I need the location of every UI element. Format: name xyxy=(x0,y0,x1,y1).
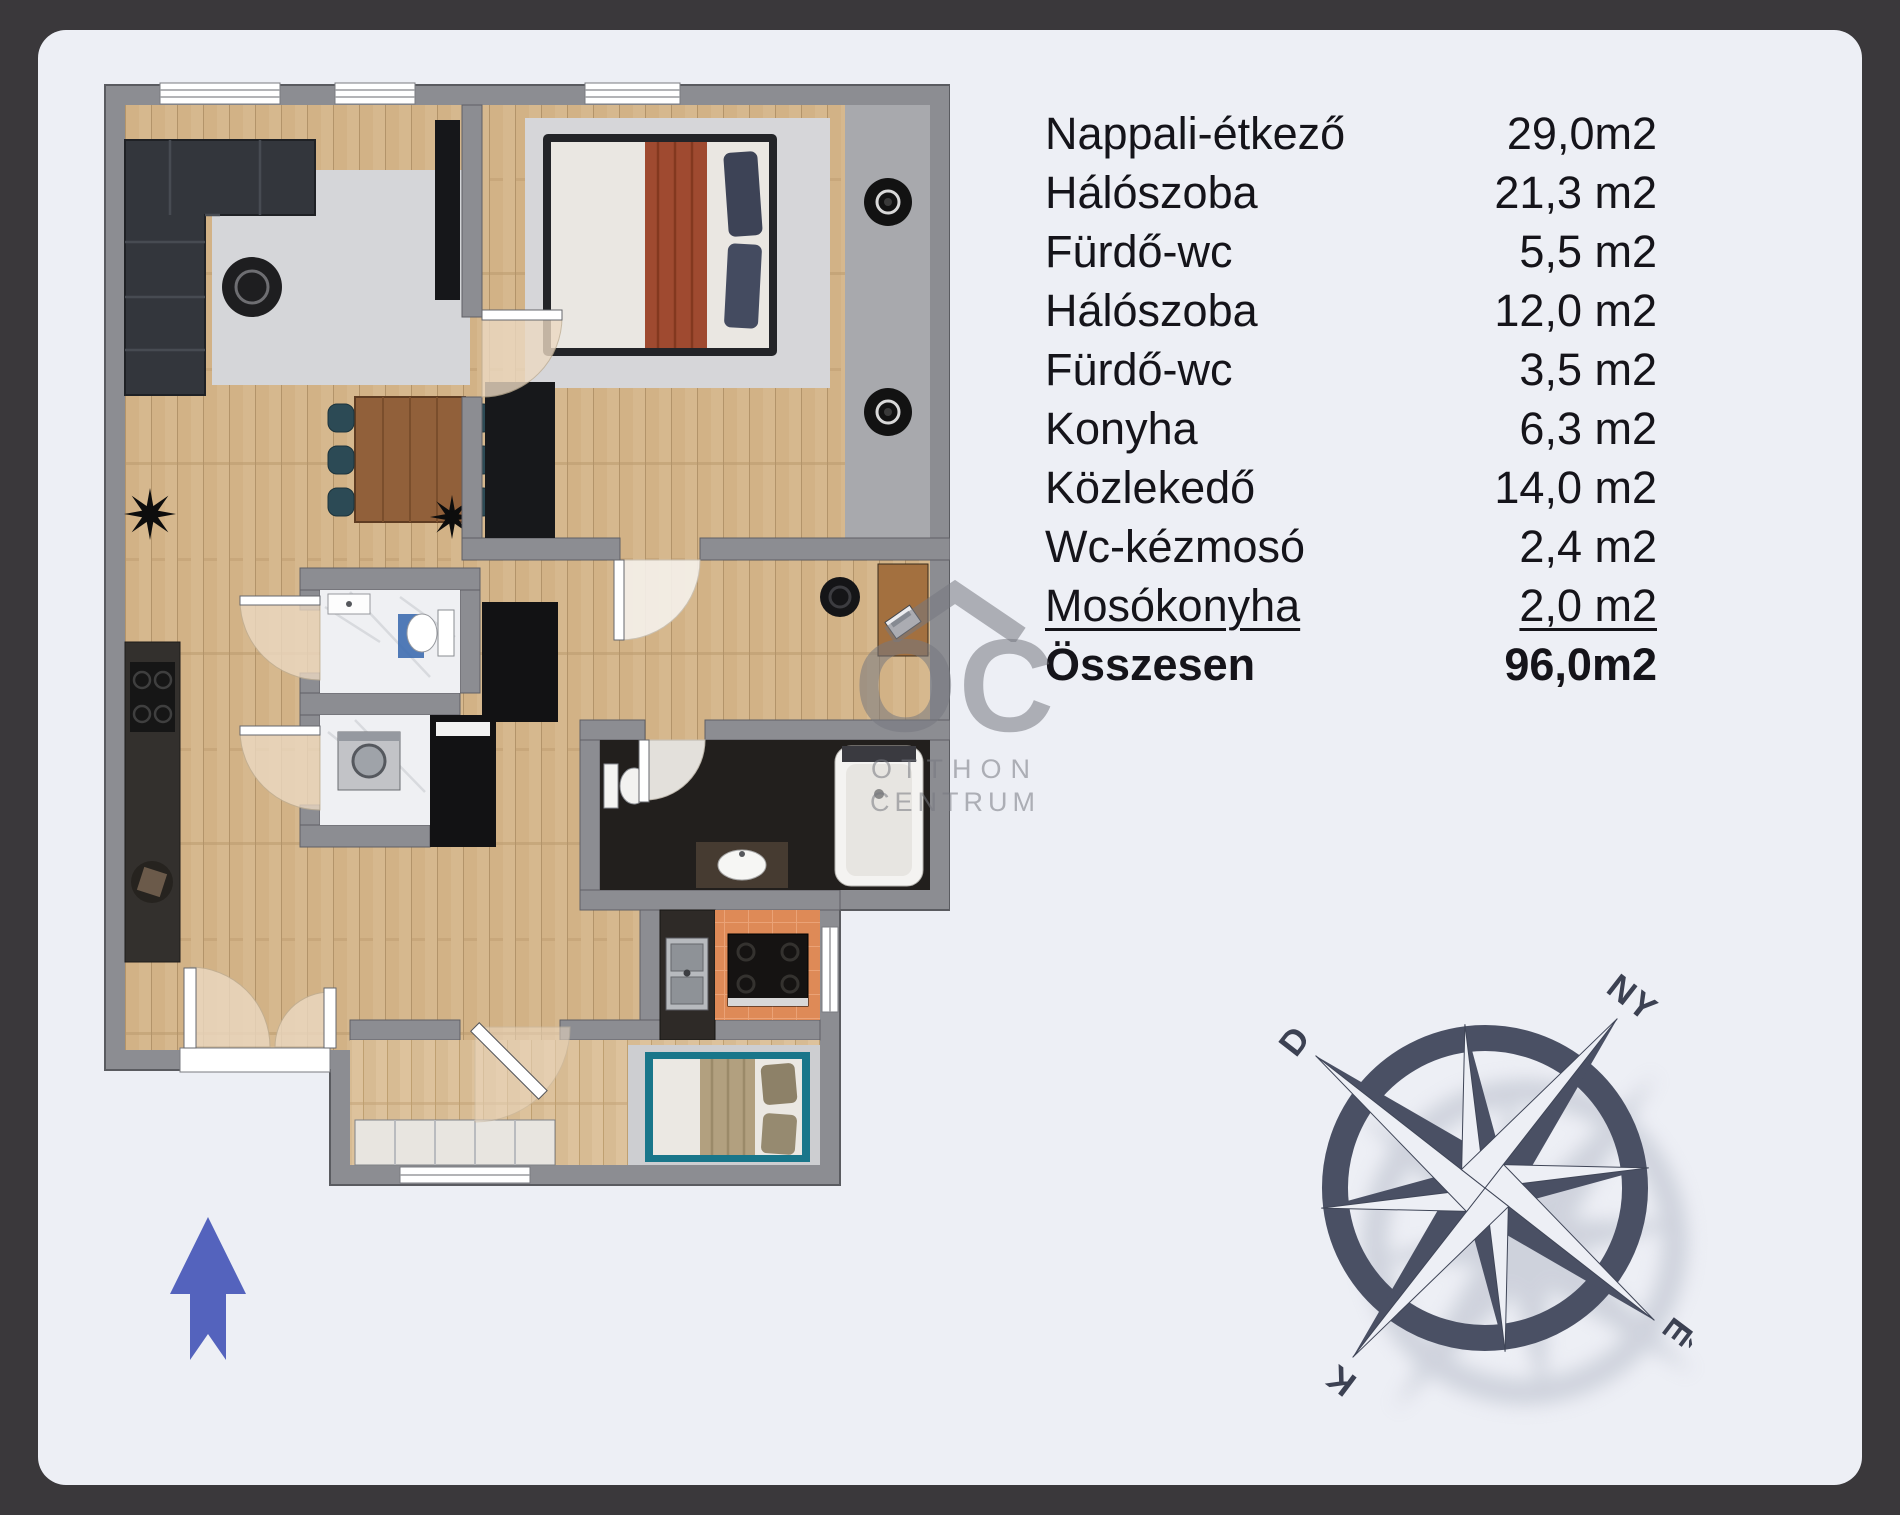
office-chair xyxy=(820,577,860,617)
room-label: Közlekedő xyxy=(1045,458,1255,517)
room-label: Fürdő-wc xyxy=(1045,340,1233,399)
room-area: 14,0 m2 xyxy=(1494,458,1657,517)
room-area: 6,3 m2 xyxy=(1519,399,1657,458)
screenshot-root: { "window": { "background": "#3a383b", "… xyxy=(0,0,1900,1515)
room-row: Közlekedő14,0 m2 xyxy=(1045,458,1657,517)
room-area: 21,3 m2 xyxy=(1494,163,1657,222)
room-label: Nappali-étkező xyxy=(1045,104,1345,163)
entrance-opening xyxy=(180,1048,330,1072)
entrance-arrow xyxy=(170,1217,246,1360)
floor-plan xyxy=(100,82,950,1372)
room-row: Konyha6,3 m2 xyxy=(1045,399,1657,458)
bed-double xyxy=(543,134,777,356)
room-row: Mosókonyha2,0 m2 xyxy=(1045,576,1657,635)
coffee-table xyxy=(222,257,282,317)
compass-label-south: D xyxy=(1271,1018,1319,1064)
room-area: 2,4 m2 xyxy=(1519,517,1657,576)
room-label: Hálószoba xyxy=(1045,163,1258,222)
laundry-room xyxy=(320,715,430,825)
bedroom-bottom xyxy=(350,1040,820,1165)
wc-room xyxy=(320,590,460,693)
room-label: Konyha xyxy=(1045,399,1198,458)
wardrobe-white xyxy=(355,1120,555,1165)
room-area: 96,0m2 xyxy=(1504,635,1657,694)
compass-label-west: NY xyxy=(1600,967,1665,1030)
kitchen-counter-left xyxy=(125,642,180,962)
room-label: Fürdő-wc xyxy=(1045,222,1233,281)
room-row: Nappali-étkező29,0m2 xyxy=(1045,104,1657,163)
compass-rose: D NY É K xyxy=(1225,928,1755,1458)
room-label: Wc-kézmosó xyxy=(1045,517,1305,576)
room-row: Wc-kézmosó2,4 m2 xyxy=(1045,517,1657,576)
room-label: Összesen xyxy=(1045,635,1255,694)
room-area: 29,0m2 xyxy=(1507,104,1657,163)
wardrobe-black xyxy=(485,382,555,538)
tv-cabinet xyxy=(435,120,460,300)
room-label: Mosókonyha xyxy=(1045,576,1300,635)
room-table: Nappali-étkező29,0m2Hálószoba21,3 m2Fürd… xyxy=(1045,104,1657,694)
hall-closet-black xyxy=(482,602,558,722)
room-area: 12,0 m2 xyxy=(1494,281,1657,340)
room-row: Fürdő-wc5,5 m2 xyxy=(1045,222,1657,281)
room-row: Hálószoba12,0 m2 xyxy=(1045,281,1657,340)
room-row: Összesen96,0m2 xyxy=(1045,635,1657,694)
room-area: 2,0 m2 xyxy=(1519,576,1657,635)
room-row: Fürdő-wc3,5 m2 xyxy=(1045,340,1657,399)
bed-teal xyxy=(645,1052,810,1162)
toilet-tank xyxy=(604,764,618,808)
room-label: Hálószoba xyxy=(1045,281,1258,340)
room-area: 5,5 m2 xyxy=(1519,222,1657,281)
compass-label-east: K xyxy=(1318,1356,1363,1404)
room-area: 3,5 m2 xyxy=(1519,340,1657,399)
room-row: Hálószoba21,3 m2 xyxy=(1045,163,1657,222)
